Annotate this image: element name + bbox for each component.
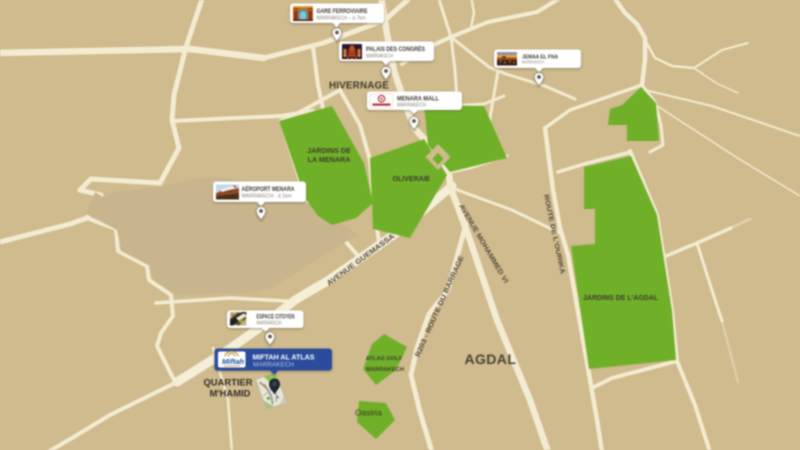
svg-text:AGDAL: AGDAL	[465, 351, 517, 367]
svg-text:ATLAS GOLF: ATLAS GOLF	[366, 356, 403, 362]
svg-text:MIFTAH AL ATLAS: MIFTAH AL ATLAS	[253, 353, 315, 362]
svg-text:M'HAMID: M'HAMID	[210, 388, 251, 399]
svg-text:MARRAKECH: MARRAKECH	[253, 362, 294, 369]
svg-text:AÉROPORT MENARA: AÉROPORT MENARA	[242, 184, 295, 193]
svg-text:MARRAKECH: MARRAKECH	[257, 320, 282, 326]
svg-text:MARRAKECH: MARRAKECH	[366, 367, 404, 373]
svg-text:MARRAKECH: MARRAKECH	[522, 60, 544, 66]
svg-text:LA MENARA: LA MENARA	[308, 155, 351, 164]
svg-text:PALAIS DES CONGRÈS: PALAIS DES CONGRÈS	[366, 45, 425, 53]
svg-text:QUARTIER: QUARTIER	[204, 377, 253, 388]
svg-text:R203 - ROUTE DU BARRAGE: R203 - ROUTE DU BARRAGE	[414, 255, 465, 359]
svg-text:MARRAKECH – à 7km: MARRAKECH – à 7km	[317, 16, 366, 22]
svg-text:JARDINS DE L'AGDAL: JARDINS DE L'AGDAL	[583, 295, 659, 302]
svg-text:Miftah: Miftah	[222, 357, 244, 366]
svg-text:MARRAKECH: MARRAKECH	[397, 102, 426, 108]
svg-text:OLIVERAIE: OLIVERAIE	[393, 176, 431, 183]
svg-text:JARDINS DE: JARDINS DE	[307, 146, 351, 155]
svg-text:HIVERNAGE: HIVERNAGE	[329, 81, 389, 92]
svg-text:GARE FERROVIAIRE: GARE FERROVIAIRE	[317, 8, 368, 15]
svg-text:Oasiria: Oasiria	[355, 408, 382, 418]
svg-text:MARRAKECH - à 1km: MARRAKECH - à 1km	[242, 194, 292, 200]
svg-text:MARRAKECH: MARRAKECH	[366, 54, 393, 60]
